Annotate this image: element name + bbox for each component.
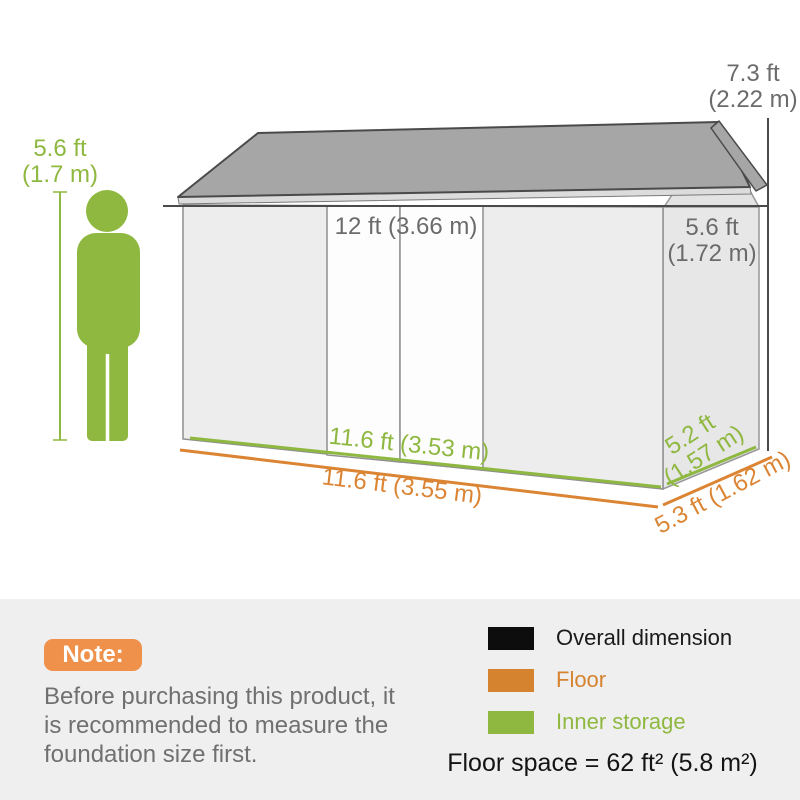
person-height-label: 5.6 ft (1.7 m) bbox=[4, 136, 116, 188]
note-line: foundation size first. bbox=[44, 740, 464, 769]
roof-front-slope bbox=[178, 122, 750, 197]
footer-panel: Note: Before purchasing this product, it… bbox=[0, 599, 800, 800]
legend-swatch-inner bbox=[488, 711, 534, 734]
overall-height-label: 7.3 ft (2.22 m) bbox=[698, 61, 800, 113]
legend-swatch-overall bbox=[488, 627, 534, 650]
legend-swatch-floor bbox=[488, 669, 534, 692]
shed-dimension-infographic: 5.6 ft (1.7 m) 7.3 ft (2.22 m) 12 ft (3.… bbox=[0, 0, 800, 800]
note-line: is recommended to measure the bbox=[44, 711, 464, 740]
floor-space-text: Floor space = 62 ft² (5.8 m²) bbox=[420, 749, 785, 778]
legend-label-inner: Inner storage bbox=[556, 710, 686, 734]
overall-width-label: 12 ft (3.66 m) bbox=[296, 214, 516, 240]
legend-label-overall: Overall dimension bbox=[556, 626, 732, 650]
note-badge: Note: bbox=[44, 639, 142, 671]
legend-label-floor: Floor bbox=[556, 668, 606, 692]
note-text: Before purchasing this product, it is re… bbox=[44, 682, 464, 769]
gable-width-label: 5.6 ft (1.72 m) bbox=[650, 215, 774, 267]
person-silhouette bbox=[77, 190, 140, 441]
note-line: Before purchasing this product, it bbox=[44, 682, 464, 711]
